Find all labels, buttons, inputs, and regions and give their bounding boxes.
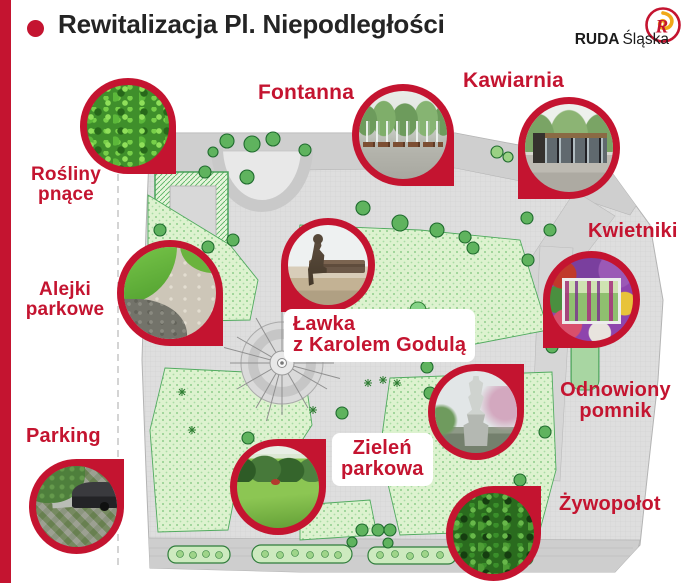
label-line: Alejki	[12, 280, 118, 300]
page-title: Rewitalizacja Pl. Niepodległości	[58, 9, 445, 40]
label-line: z Karolem Godulą	[293, 335, 466, 356]
label-line: Rośliny	[14, 165, 118, 185]
callout-label-fontanna: Fontanna	[258, 82, 354, 104]
godula-bench-statue-photo	[288, 225, 368, 305]
callout-bubble-kawiarnia	[518, 97, 620, 199]
callout-label-rosliny-pnace: Rośliny pnące	[14, 165, 118, 206]
callout-bubble-odnowiony-pomnik	[428, 364, 524, 460]
label-line: Ławka	[293, 314, 466, 335]
callout-bubble-lawka-godula	[281, 218, 375, 312]
cafe-pavilion-photo	[525, 104, 613, 192]
callout-bubble-zielen-parkowa	[230, 439, 326, 535]
label-line: parkowe	[12, 300, 118, 320]
callout-label-odnowiony-pomnik: Odnowiony pomnik	[538, 380, 693, 423]
callout-label-kwietniki: Kwietniki	[588, 221, 678, 242]
callout-label-alejki-parkowe: Alejki parkowe	[12, 280, 118, 321]
callout-label-kawiarnia: Kawiarnia	[463, 70, 564, 92]
callout-label-lawka-godula: Ławka z Karolem Godulą	[284, 309, 475, 362]
label-line: Fontanna	[258, 82, 354, 104]
label-line: Kawiarnia	[463, 70, 564, 92]
callout-bubble-parking	[29, 459, 124, 554]
left-accent-bar	[0, 0, 11, 583]
label-line: Kwietniki	[588, 221, 678, 242]
label-line: Parking	[26, 426, 101, 447]
infographic-poster: Rewitalizacja Pl. Niepodległości R RUDAŚ…	[0, 0, 696, 583]
hedge-photo	[453, 493, 534, 574]
park-lawn-photo	[237, 446, 319, 528]
callout-bubble-kwietniki	[543, 251, 640, 348]
label-line: Zieleń	[341, 438, 424, 459]
callout-bubble-rosliny-pnace	[80, 78, 176, 174]
flower-beds-photo	[550, 258, 633, 341]
title-bullet-icon	[27, 20, 44, 37]
green-parking-photo	[36, 466, 117, 547]
callout-label-zywopolot: Żywopołot	[559, 494, 661, 515]
renovated-monument-photo	[435, 371, 517, 453]
label-line: pnące	[14, 185, 118, 205]
label-line: parkowa	[341, 459, 424, 480]
park-path-photo	[124, 247, 216, 339]
label-line: Żywopołot	[559, 494, 661, 515]
logo-region-name: Śląska	[622, 31, 669, 48]
callout-bubble-fontanna	[352, 84, 454, 186]
callout-label-zielen-parkowa: Zieleń parkowa	[332, 433, 433, 486]
callout-label-parking: Parking	[26, 426, 101, 447]
climbing-ivy-photo	[87, 85, 169, 167]
logo-city-name: RUDA	[575, 31, 620, 48]
callout-bubble-alejki-parkowe	[117, 240, 223, 346]
callout-bubble-zywopolot	[446, 486, 541, 581]
logo-wordmark: RUDAŚląska	[575, 31, 669, 49]
label-line: pomnik	[538, 401, 693, 422]
label-line: Odnowiony	[538, 380, 693, 401]
fountain-photo	[359, 91, 447, 179]
